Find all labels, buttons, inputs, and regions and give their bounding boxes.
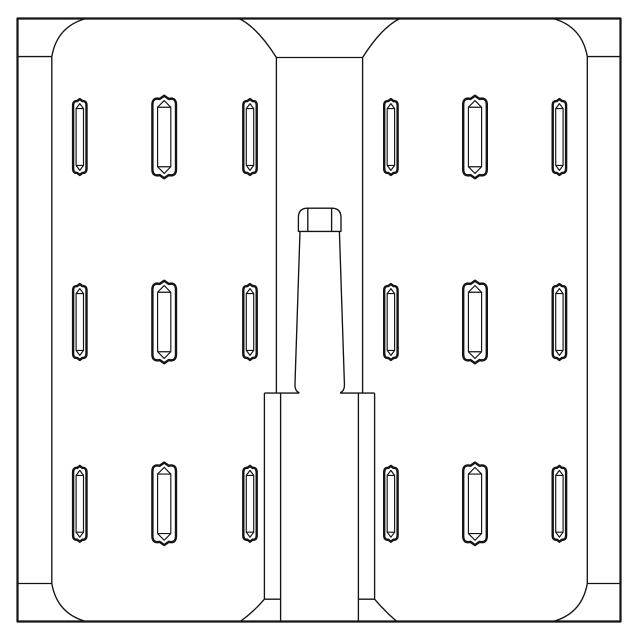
vent-slot-narrow (553, 466, 566, 542)
slot-chamfer-vees (556, 289, 563, 356)
slot-outer-outline (152, 281, 176, 364)
slot-inner-hole (556, 109, 563, 166)
vent-slot-narrow (384, 99, 397, 175)
right-panel-top-corner (553, 19, 587, 57)
slot-outer-outline (73, 284, 86, 360)
slot-inner-hole (158, 292, 171, 352)
vent-slot-narrow (553, 284, 566, 360)
vent-slot-wide (463, 96, 487, 179)
slot-chamfer-vees (76, 470, 83, 537)
vent-slot-narrow (384, 284, 397, 360)
slot-outer-outline (384, 284, 397, 360)
slot-inner-hole (468, 292, 481, 352)
sprue-cap-outline (298, 208, 341, 231)
vent-slot-narrow (243, 284, 256, 360)
slot-chamfer-vees (556, 470, 563, 537)
slot-chamfer-vees (468, 101, 481, 174)
vent-slot-narrow (73, 466, 86, 542)
slot-outer-outline (463, 96, 487, 179)
sprue-right-side (339, 231, 344, 392)
slot-outer-outline (243, 99, 256, 175)
slot-chamfer-vees (387, 104, 394, 171)
slot-chamfer-vees (556, 104, 563, 171)
slot-chamfer-vees (387, 470, 394, 537)
slot-inner-hole (556, 294, 563, 351)
slot-chamfer-vees (387, 289, 394, 356)
drawing-page (0, 0, 640, 640)
slot-chamfer-vees (468, 286, 481, 359)
vent-slot-narrow (243, 466, 256, 542)
vent-slot-wide (152, 463, 176, 546)
vent-slot-wide (152, 96, 176, 179)
slot-outer-outline (73, 466, 86, 542)
technical-drawing (0, 0, 640, 640)
slot-outer-outline (463, 281, 487, 364)
slot-outer-outline (384, 99, 397, 175)
slot-outer-outline (384, 466, 397, 542)
slot-inner-hole (158, 107, 171, 167)
vent-slot-narrow (553, 99, 566, 175)
slot-inner-hole (76, 294, 83, 351)
boss-left-chamfer (240, 599, 264, 621)
vent-slot-narrow (73, 99, 86, 175)
slot-inner-hole (158, 474, 171, 534)
slot-chamfer-vees (76, 289, 83, 356)
left-panel-top-corner (52, 19, 86, 57)
slot-outer-outline (152, 96, 176, 179)
slot-inner-hole (246, 475, 253, 532)
slot-inner-hole (387, 109, 394, 166)
slot-inner-hole (387, 475, 394, 532)
slot-inner-hole (76, 475, 83, 532)
sprue-left-side (295, 231, 300, 392)
left-panel-bottom-corner (52, 584, 86, 622)
slot-chamfer-vees (158, 467, 171, 540)
slot-inner-hole (468, 107, 481, 167)
slot-chamfer-vees (76, 104, 83, 171)
slot-inner-hole (76, 109, 83, 166)
slot-outer-outline (73, 99, 86, 175)
vent-slot-narrow (384, 466, 397, 542)
vent-slot-wide (463, 463, 487, 546)
vent-slot-narrow (243, 99, 256, 175)
slot-outer-outline (152, 463, 176, 546)
slot-inner-hole (387, 294, 394, 351)
slot-chamfer-vees (246, 470, 253, 537)
drawing-canvas (0, 0, 640, 640)
slot-outer-outline (553, 99, 566, 175)
slot-inner-hole (556, 475, 563, 532)
vent-slot-narrow (73, 284, 86, 360)
slot-outer-outline (463, 463, 487, 546)
slot-outer-outline (553, 284, 566, 360)
slot-chamfer-vees (246, 104, 253, 171)
slot-chamfer-vees (158, 286, 171, 359)
boss-right-chamfer (375, 599, 397, 621)
slot-chamfer-vees (246, 289, 253, 356)
outer-frame (18, 19, 621, 622)
channel-left-flare (239, 19, 276, 58)
slot-outer-outline (553, 466, 566, 542)
slot-inner-hole (468, 474, 481, 534)
slot-inner-hole (246, 109, 253, 166)
channel-right-flare (363, 19, 400, 58)
vent-slot-wide (152, 281, 176, 364)
slot-outer-outline (243, 284, 256, 360)
slot-chamfer-vees (468, 467, 481, 540)
right-panel-bottom-corner (553, 584, 587, 622)
vent-slot-wide (463, 281, 487, 364)
slot-inner-hole (246, 294, 253, 351)
slot-chamfer-vees (158, 101, 171, 174)
slot-outer-outline (243, 466, 256, 542)
